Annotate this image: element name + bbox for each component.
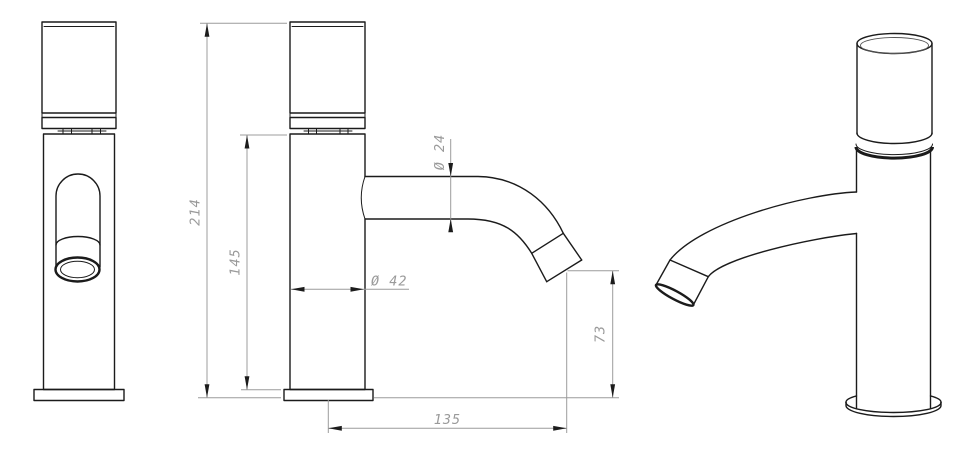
- front-handle-outline: [42, 22, 116, 113]
- tap-technical-drawing: 214 145 Ø 24 Ø 42 73: [0, 0, 966, 456]
- dim-total-height-label: 214: [188, 198, 204, 225]
- side-base-plate: [284, 390, 373, 401]
- drawing-canvas: 214 145 Ø 24 Ø 42 73: [0, 0, 966, 456]
- persp-collar-upper-arc: [856, 144, 933, 155]
- side-view: [284, 22, 582, 401]
- dimension-total-height: 214: [188, 23, 288, 397]
- front-collar: [42, 118, 116, 129]
- persp-spout-outer-edge: [656, 192, 857, 285]
- front-outlet-inner-ring: [61, 261, 95, 277]
- front-base-plate: [34, 390, 124, 401]
- front-spout-cap-rim: [56, 237, 100, 246]
- side-handle-outline: [290, 22, 365, 113]
- side-body-outline: [290, 134, 365, 390]
- side-spout-bottom-edge: [365, 219, 547, 282]
- persp-body-sides: [857, 149, 931, 409]
- persp-spout-inner-edge: [693, 234, 856, 306]
- persp-outlet-rim: [654, 281, 695, 308]
- side-collar: [290, 118, 365, 129]
- persp-handle-sides: [857, 44, 932, 135]
- persp-collar-band: [856, 147, 933, 158]
- side-spout-top-edge: [365, 177, 582, 261]
- front-view: [34, 22, 124, 401]
- dimension-body-diameter: Ø 42: [291, 274, 409, 290]
- dim-spout-diameter-label: Ø 24: [432, 134, 448, 171]
- persp-handle-top-inset: [861, 38, 929, 54]
- dimension-spout-diameter: Ø 24: [432, 134, 451, 231]
- dim-body-diameter-label: Ø 42: [371, 274, 408, 290]
- side-spout-root-fillet: [361, 177, 365, 220]
- persp-base-front-rim: [846, 403, 941, 413]
- perspective-view: [654, 34, 941, 417]
- dimension-spout-reach: 135: [328, 273, 566, 434]
- side-aerator-joint: [532, 233, 564, 253]
- front-spout-silhouette: [56, 174, 100, 267]
- persp-base-back-rim: [846, 396, 941, 403]
- dim-outlet-height-label: 73: [593, 325, 609, 343]
- persp-handle-bottom-arc: [857, 133, 932, 144]
- dimension-outlet-height: 73: [374, 271, 619, 398]
- dimension-body-height: 145: [228, 135, 288, 390]
- dimensions: 214 145 Ø 24 Ø 42 73: [188, 23, 620, 433]
- dim-body-height-label: 145: [228, 248, 244, 275]
- persp-aerator-joint: [670, 260, 708, 277]
- dim-spout-reach-label: 135: [434, 412, 461, 428]
